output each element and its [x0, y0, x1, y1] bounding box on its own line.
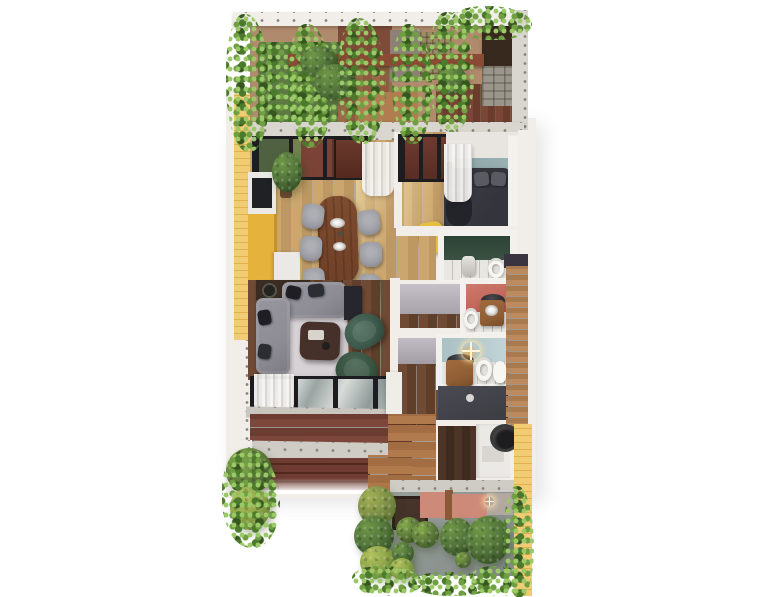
bedroom-curtain: [444, 144, 472, 202]
garden-sparkle: [485, 497, 494, 506]
table-lamp: [262, 283, 277, 298]
kitchen-plant: [272, 152, 302, 192]
bath-bidet: [493, 361, 507, 383]
light-sparkle: [462, 342, 480, 360]
upper-hall-floor: [398, 236, 436, 280]
bed-pillow: [473, 171, 489, 186]
left-outer-edge: [226, 90, 234, 492]
garden-pink-wall: [452, 494, 488, 518]
bath-toilet: [476, 357, 492, 381]
vine-overhang: [452, 6, 532, 40]
sofa-pillow: [285, 285, 302, 301]
coffee-table-bowl: [322, 342, 330, 350]
table-bowl: [337, 231, 344, 237]
ensuite-shower-fixture: [462, 256, 475, 276]
sofa-pillow: [307, 283, 324, 298]
coffee-table: [299, 321, 340, 360]
dining-curtain: [362, 142, 394, 196]
ensuite-toilet: [488, 258, 504, 278]
powder-toilet: [464, 308, 478, 329]
shower-drain: [466, 394, 474, 402]
ensuite-green-wall: [444, 236, 510, 260]
dining-chair: [299, 235, 322, 261]
sofa-pillow: [257, 343, 272, 360]
timber-plank-wall: [506, 266, 528, 428]
coffee-table-tray: [308, 330, 324, 340]
cooktop: [252, 178, 272, 208]
plate-1: [330, 218, 345, 228]
apartment-3d-floorplan: [0, 0, 770, 597]
dining-chair: [360, 242, 383, 268]
garden-shrub: [412, 521, 439, 548]
hall-wall-upper: [400, 284, 460, 316]
garden-shrub: [455, 552, 471, 568]
sofa-pillow: [257, 309, 272, 326]
utility-floor: [438, 426, 476, 484]
powder-sink-bowl: [485, 305, 498, 316]
bed-pillow: [490, 171, 506, 186]
stone-wall: [482, 66, 516, 106]
garden-pink-wall: [420, 492, 446, 518]
plate-2: [333, 242, 346, 251]
shower-area: [438, 386, 508, 422]
bath-vanity: [446, 360, 473, 386]
